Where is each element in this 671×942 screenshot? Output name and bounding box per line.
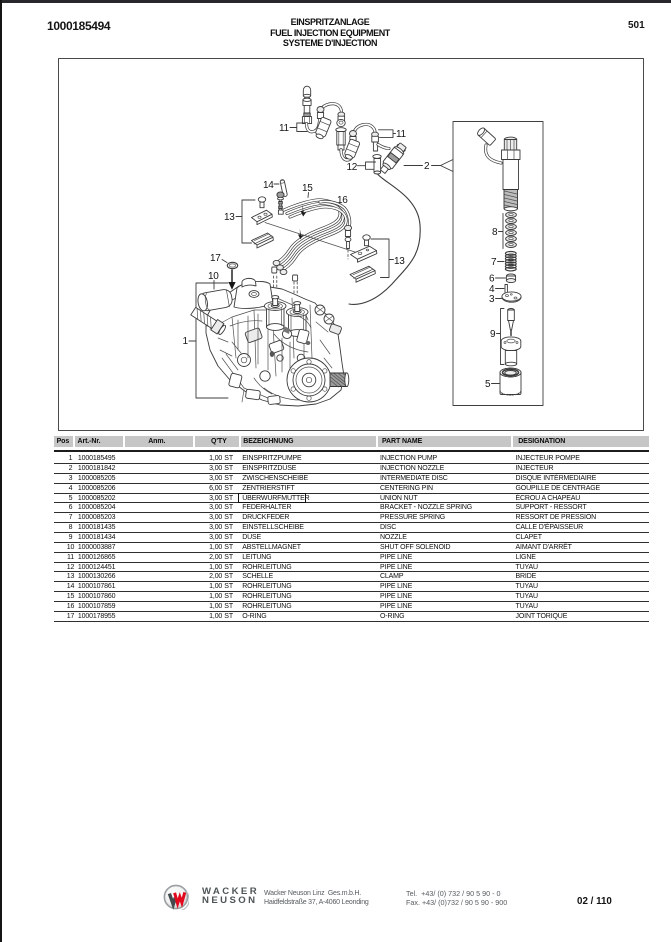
svg-text:9: 9 [490,329,496,340]
svg-text:6: 6 [489,274,495,285]
svg-text:15: 15 [302,183,313,194]
svg-text:5: 5 [485,379,491,390]
svg-text:12: 12 [347,162,358,173]
svg-text:14: 14 [263,180,274,191]
svg-text:7: 7 [491,257,497,268]
svg-text:11: 11 [279,123,290,134]
svg-text:13: 13 [224,212,235,223]
svg-text:11: 11 [396,129,407,140]
svg-text:17: 17 [210,253,221,264]
svg-text:13: 13 [394,256,405,267]
svg-text:1: 1 [183,336,189,347]
svg-text:3: 3 [489,294,495,305]
svg-text:8: 8 [492,227,498,238]
svg-text:2: 2 [424,161,430,172]
